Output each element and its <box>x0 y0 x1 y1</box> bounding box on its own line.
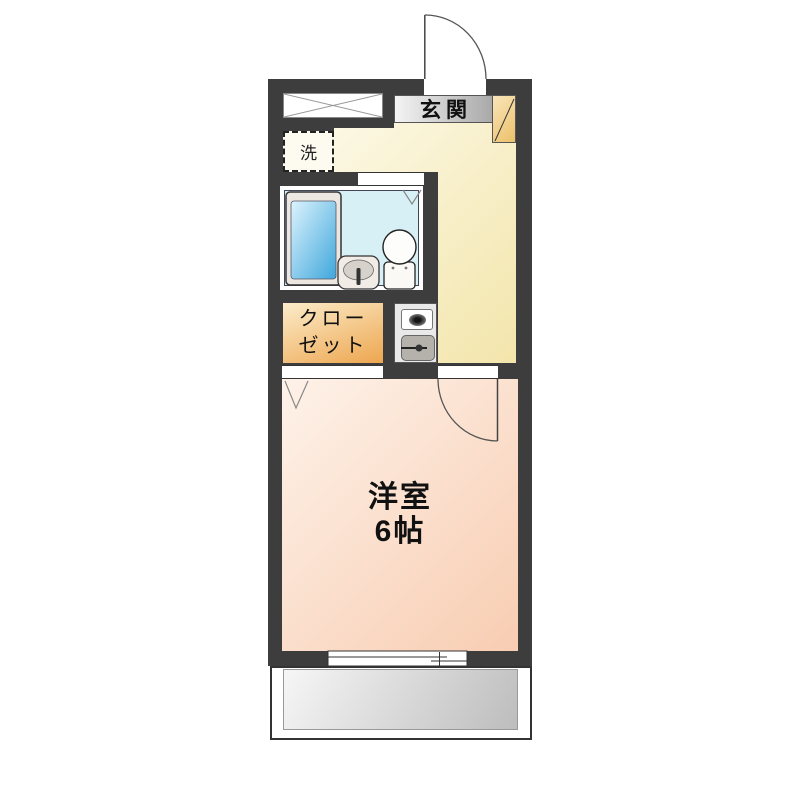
room-size: 6帖 <box>368 515 432 550</box>
closet: クロー ゼット <box>283 303 383 363</box>
kitchen-faucet-icon <box>395 304 438 364</box>
toilet-dot-icon <box>392 267 395 270</box>
entrance-door-arc-icon <box>425 15 486 79</box>
bathroom-door-mark-icon <box>403 190 421 204</box>
toilet-base-icon <box>384 262 415 289</box>
floorplan-canvas: 玄関 洗 <box>0 0 800 800</box>
entrance-door-opening <box>424 79 486 95</box>
washing-machine-space: 洗 <box>283 131 334 172</box>
closet-opening <box>282 365 383 379</box>
cross-icon <box>284 94 382 117</box>
toilet-bowl-icon <box>383 230 416 264</box>
shoe-cabinet-diagonal-icon <box>493 96 517 144</box>
room-name: 洋室 <box>368 481 432 516</box>
shoe-cabinet <box>492 95 516 143</box>
balcony-floor <box>283 669 518 730</box>
room-door-opening <box>438 365 498 379</box>
entrance-label: 玄関 <box>420 94 472 124</box>
main-room: 洋室 6帖 <box>282 379 518 651</box>
mini-kitchen <box>394 303 437 363</box>
toilet-dot-icon <box>405 267 408 270</box>
bathtub-water-icon <box>291 201 336 279</box>
closet-label-line2: ゼット <box>299 333 368 360</box>
entrance-step: 玄関 <box>394 95 493 123</box>
closet-label-line1: クロー <box>299 306 368 333</box>
bathroom-fixtures <box>280 186 423 290</box>
balcony <box>270 666 532 740</box>
room-label: 洋室 6帖 <box>368 481 432 550</box>
storage-crossbox <box>283 93 383 118</box>
washer-label: 洗 <box>300 139 317 164</box>
bathroom-door-opening <box>358 172 424 186</box>
vanity-faucet-icon <box>357 268 361 285</box>
bathroom-unit <box>280 186 423 290</box>
